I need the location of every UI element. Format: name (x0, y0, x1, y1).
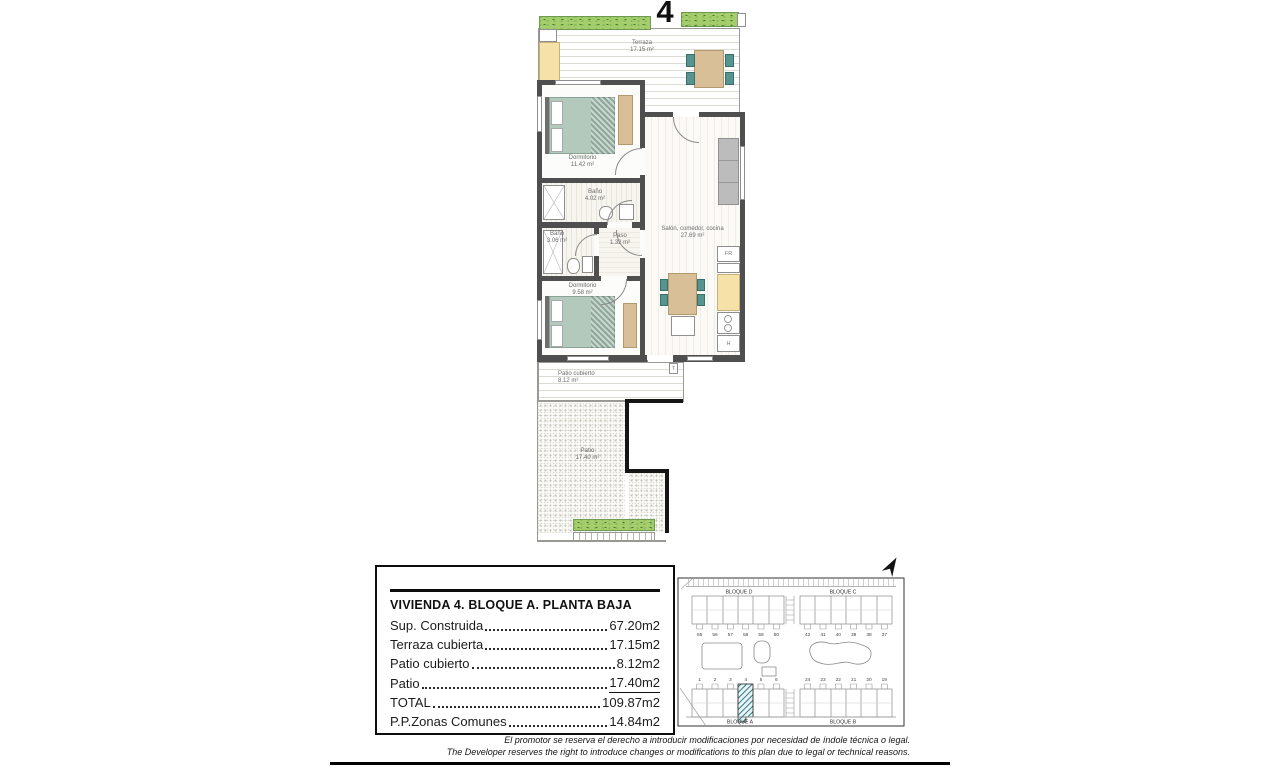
wall-segment (640, 258, 645, 355)
svg-text:4: 4 (744, 677, 747, 683)
window (687, 356, 713, 361)
patio-boundary (625, 403, 629, 471)
room-name: Patio cubierto (558, 371, 618, 378)
svg-text:41: 41 (820, 632, 826, 638)
dot-leader (472, 667, 615, 669)
window (567, 356, 609, 361)
info-label: Terraza cubierta (390, 635, 483, 654)
dining-chair (660, 294, 668, 306)
room-name: Terraza (617, 40, 667, 47)
svg-text:2: 2 (714, 677, 717, 683)
fridge-label: FR (725, 251, 732, 257)
svg-text:20: 20 (866, 677, 872, 683)
terrace-chair (686, 72, 695, 85)
dot-leader (485, 629, 607, 631)
info-value: 67.20m2 (609, 616, 660, 635)
wall-segment (594, 256, 599, 276)
terrace-chair (725, 72, 734, 85)
north-arrow (882, 556, 902, 577)
room-area: 8.12 m² (558, 378, 618, 385)
terrace-planter-top (539, 29, 557, 42)
boundary-line (538, 400, 626, 401)
room-area: 3.06 m² (541, 238, 573, 245)
unit-info-box: VIVIENDA 4. BLOQUE A. PLANTA BAJA Sup. C… (375, 565, 675, 735)
utility-marker-label: T (672, 366, 675, 372)
dot-leader (422, 687, 608, 689)
svg-text:21: 21 (851, 677, 857, 683)
wall-segment (594, 228, 599, 234)
terrace-hedge-right (681, 12, 739, 27)
footprint-edge (625, 399, 683, 403)
svg-text:23: 23 (820, 677, 826, 683)
room-area: 1.32 m² (601, 240, 639, 247)
wall-segment (640, 85, 645, 148)
patio-bottom-edge (538, 540, 666, 542)
dot-leader (509, 725, 608, 727)
terrace-table (694, 50, 724, 88)
info-value: 109.87m2 (602, 693, 660, 712)
pillow (551, 101, 563, 125)
room-name: Dormitorio (555, 283, 610, 290)
svg-text:5: 5 (760, 677, 763, 683)
hob-label: H (727, 341, 731, 347)
disclaimer: El promotor se reserva el derecho a intr… (390, 735, 910, 758)
svg-text:6: 6 (775, 677, 778, 683)
room-area: 27.69 m² (650, 233, 735, 240)
info-row: Terraza cubierta17.15m2 (390, 635, 660, 654)
room-label-dormitorio2: Dormitorio 9.58 m² (555, 283, 610, 297)
block-label-d: BLOQUE D (726, 590, 753, 596)
bench (671, 316, 695, 336)
sink-basin (724, 324, 732, 332)
kitchen-counter (717, 274, 740, 311)
floor-plan: FR H T Terraza (537, 0, 751, 556)
room-name: Patio (565, 448, 610, 455)
info-value: 8.12m2 (617, 654, 660, 673)
block-label-a: BLOQUE A (727, 720, 754, 726)
svg-text:38: 38 (866, 632, 872, 638)
svg-text:1: 1 (698, 677, 701, 683)
svg-text:3: 3 (729, 677, 732, 683)
svg-text:55: 55 (697, 632, 703, 638)
toilet (567, 258, 580, 274)
svg-text:60: 60 (774, 632, 780, 638)
info-row: Patio17.40m2 (390, 673, 660, 693)
pillow (551, 128, 563, 152)
info-value: 17.15m2 (609, 635, 660, 654)
info-label: Patio cubierto (390, 654, 470, 673)
room-label-bano2: Baño 3.06 m² (541, 231, 573, 245)
room-name: Baño (575, 189, 615, 196)
terrace-chair (686, 54, 695, 67)
wall-segment (537, 276, 601, 281)
shower-tray (543, 185, 565, 220)
svg-text:37: 37 (882, 632, 888, 638)
window (740, 146, 745, 200)
dot-leader (485, 648, 607, 650)
room-label-bano1: Baño 4.02 m² (575, 189, 615, 203)
parking-ticks (688, 579, 894, 586)
info-value: 14.84m2 (609, 712, 660, 731)
window (555, 80, 601, 85)
wardrobe (623, 303, 637, 348)
pillow (551, 300, 563, 322)
svg-text:42: 42 (805, 632, 811, 638)
window (537, 300, 542, 340)
disclaimer-en: The Developer reserves the right to intr… (390, 747, 910, 759)
room-name: Paso (601, 233, 639, 240)
dining-chair (697, 279, 705, 291)
dot-leader (433, 706, 600, 708)
site-plan: BLOQUE D BLOQUE C 55 56 57 58 59 60 4 (676, 556, 908, 732)
terrace-chair (725, 54, 734, 67)
wall-segment (627, 276, 645, 281)
svg-text:59: 59 (758, 632, 764, 638)
fridge: FR (717, 246, 740, 262)
room-area: 11.42 m² (555, 162, 610, 169)
terrace-post (737, 13, 746, 27)
patio-boundary (625, 469, 669, 473)
room-name: Salón, comedor, cocina (650, 226, 735, 233)
info-label: TOTAL (390, 693, 431, 712)
unit-title: VIVIENDA 4. BLOQUE A. PLANTA BAJA (390, 598, 660, 612)
wardrobe (618, 95, 633, 145)
terrace-hedge-left (539, 16, 651, 30)
room-area: 17.40 m² (565, 455, 610, 462)
info-label: P.P.Zonas Comunes (390, 712, 507, 731)
room-label-patio-cubierto: Patio cubierto 8.12 m² (558, 371, 618, 385)
info-label: Sup. Construida (390, 616, 483, 635)
block-label-c: BLOQUE C (830, 590, 857, 596)
block-label-b: BLOQUE B (830, 720, 857, 726)
bottom-rule (330, 762, 950, 765)
svg-text:19: 19 (882, 677, 888, 683)
sink-basin (724, 315, 732, 323)
svg-text:56: 56 (712, 632, 718, 638)
room-label-terraza: Terraza 17.15 m² (617, 40, 667, 54)
room-label-salon: Salón, comedor, cocina 27.69 m² (650, 226, 735, 240)
entrance-door-gap (673, 112, 699, 117)
room-label-dormitorio1: Dormitorio 11.42 m² (555, 155, 610, 169)
svg-text:22: 22 (836, 677, 842, 683)
room-area: 17.15 m² (617, 47, 667, 54)
room-label-paso: Paso 1.32 m² (601, 233, 639, 247)
wall-segment (537, 178, 645, 183)
info-value: 17.40m2 (609, 673, 660, 693)
dining-chair (660, 279, 668, 291)
patio-boundary (665, 469, 669, 533)
hob: H (717, 335, 740, 352)
pillow (551, 325, 563, 347)
info-label: Patio (390, 674, 420, 693)
dining-chair (697, 294, 705, 306)
kitchen-unit (717, 263, 740, 273)
bed-throw (591, 97, 615, 154)
info-row: P.P.Zonas Comunes14.84m2 (390, 712, 660, 731)
svg-text:40: 40 (836, 632, 842, 638)
highlighted-unit (738, 684, 753, 717)
info-row: Patio cubierto8.12m2 (390, 654, 660, 673)
svg-text:24: 24 (805, 677, 811, 683)
divider (390, 589, 660, 592)
patio-hedge (573, 519, 655, 531)
disclaimer-es: El promotor se reserva el derecho a intr… (390, 735, 910, 747)
dining-table (668, 273, 697, 315)
room-label-patio: Patio 17.40 m² (565, 448, 610, 462)
svg-text:57: 57 (728, 632, 734, 638)
room-area: 4.02 m² (575, 196, 615, 203)
utility-marker: T (669, 363, 678, 374)
kitchen-sink (717, 312, 740, 334)
patio-gravel (538, 403, 625, 533)
room-name: Baño (541, 231, 573, 238)
window (537, 96, 542, 132)
room-name: Dormitorio (555, 155, 610, 162)
info-row: TOTAL109.87m2 (390, 693, 660, 712)
patio-left-edge (537, 362, 538, 542)
room-area: 9.58 m² (555, 290, 610, 297)
svg-text:58: 58 (743, 632, 749, 638)
info-row: Sup. Construida67.20m2 (390, 616, 660, 635)
wall-segment (632, 222, 645, 228)
sofa (718, 138, 739, 205)
washbasin (582, 256, 593, 273)
svg-text:39: 39 (851, 632, 857, 638)
